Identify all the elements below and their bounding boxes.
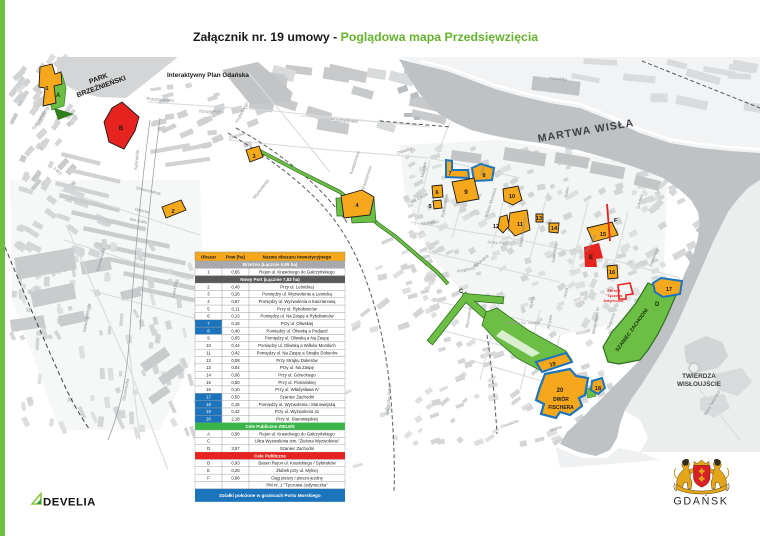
svg-text:Przy ul. Letnickiej: Przy ul. Letnickiej [280,284,313,289]
svg-text:12: 12 [206,358,211,363]
svg-text:"Tęczowa: "Tęczowa [606,294,624,298]
svg-text:F: F [207,475,210,480]
svg-text:Przy ul. Floriańskiej: Przy ul. Floriańskiej [278,380,315,385]
svg-text:0,08: 0,08 [231,475,240,480]
svg-text:Pomiędzy ul. Wyzwolenia a Kasz: Pomiędzy ul. Wyzwolenia a Kasztanową [259,299,336,304]
svg-text:0,08: 0,08 [231,358,240,363]
svg-text:Pomiędzy ul. Wyzwolenia i Star: Pomiędzy ul. Wyzwolenia i Starowiejską [259,402,336,407]
svg-text:6: 6 [435,190,438,196]
svg-text:17: 17 [206,395,211,400]
svg-text:0,50: 0,50 [231,395,240,400]
svg-text:0,15: 0,15 [231,402,240,407]
svg-text:5: 5 [428,204,431,210]
svg-text:Przy ul. Wyzwolenia 41: Przy ul. Wyzwolenia 41 [275,409,320,414]
svg-text:GDAŃSK: GDAŃSK [673,495,728,508]
svg-text:0,04: 0,04 [231,365,240,370]
svg-text:14: 14 [206,372,211,377]
svg-text:0,40: 0,40 [231,284,240,289]
svg-text:E: E [207,468,210,473]
svg-text:Działki położone w granicach P: Działki położone w granicach Portu Morsk… [219,493,321,498]
svg-text:Szaniec Zachodni: Szaniec Zachodni [280,395,314,400]
svg-text:10: 10 [509,194,515,200]
svg-text:2,18: 2,18 [231,417,240,422]
svg-text:DEVELIA: DEVELIA [43,497,96,509]
svg-text:0,50: 0,50 [231,380,240,385]
svg-text:Załącznik nr. 19 umowy - Poglą: Załącznik nr. 19 umowy - Poglądowa mapa … [193,30,538,44]
svg-text:16: 16 [206,387,211,392]
svg-text:0,65: 0,65 [231,270,240,275]
svg-text:DWÓR: DWÓR [553,395,569,403]
svg-text:Nowy Port: Nowy Port [199,109,222,116]
svg-text:13: 13 [536,216,542,222]
svg-text:0,26: 0,26 [231,292,240,297]
svg-text:Pomiędzy ul. Oliwską a Wilków: Pomiędzy ul. Oliwską a Wilków Morskich [258,343,336,348]
svg-text:0,25: 0,25 [231,468,240,473]
svg-text:Pomiędzy ul. Na Zaspę a Ryboło: Pomiędzy ul. Na Zaspę a Rybołowców [260,314,334,319]
svg-text:Przy Strajku Dokerów: Przy Strajku Dokerów [276,358,318,363]
svg-text:Ciąg pieszy i pieszo-jezdny: Ciąg pieszy i pieszo-jezdny [271,475,324,480]
svg-text:Szaniec Zachodni: Szaniec Zachodni [280,446,314,451]
svg-text:0,42: 0,42 [231,350,240,355]
svg-text:Obszar: Obszar [201,254,217,259]
svg-text:0,06: 0,06 [231,372,240,377]
svg-text:WISŁOUJŚCIE: WISŁOUJŚCIE [677,379,722,388]
svg-text:15: 15 [600,232,606,238]
svg-text:Pomiędzy ul. Wyzwolenia a Letn: Pomiędzy ul. Wyzwolenia a Letnicką [262,292,332,297]
svg-text:E: E [589,255,593,261]
svg-text:A: A [56,93,61,99]
svg-text:Przy ul. Na Zaspę: Przy ul. Na Zaspę [280,365,315,370]
svg-text:Pow (ha): Pow (ha) [226,254,246,259]
svg-text:12: 12 [493,224,499,230]
svg-text:Żłobek przy ul. Mylnej: Żłobek przy ul. Mylnej [276,468,318,473]
svg-text:15: 15 [206,380,211,385]
svg-text:3,57: 3,57 [231,446,240,451]
svg-text:D: D [655,302,660,308]
svg-text:Przy ul. Oliwskiej: Przy ul. Oliwskiej [281,321,314,326]
svg-text:Cele Publiczne: Cele Publiczne [254,453,286,458]
svg-text:Nowy Port (Łącznie 7,82 ha): Nowy Port (Łącznie 7,82 ha) [240,277,300,282]
svg-text:Pomiędzy ul. Oliwską a Na Zasp: Pomiędzy ul. Oliwską a Na Zaspę [265,336,330,341]
svg-text:Rejon ul. Krasickiego do Gałcz: Rejon ul. Krasickiego do Gałczyńskiego [259,431,335,436]
svg-text:0,40: 0,40 [231,328,240,333]
svg-text:TWIERDZA: TWIERDZA [682,373,716,380]
svg-text:7: 7 [448,171,451,177]
svg-text:11: 11 [206,350,211,355]
svg-text:C: C [459,289,464,295]
svg-text:C: C [207,439,210,444]
svg-text:0,10: 0,10 [231,387,240,392]
svg-text:Cmentarz Św. Jadwigi: Cmentarz Św. Jadwigi [504,320,540,325]
svg-text:9: 9 [464,189,468,196]
svg-text:Interaktywny Plan Gdańska: Interaktywny Plan Gdańska [167,72,249,79]
svg-text:2: 2 [171,209,174,215]
svg-text:Pomiędzy ul. Na Zaspę a Strajk: Pomiędzy ul. Na Zaspę a Strajku Dokerów [257,350,339,355]
svg-text:10: 10 [206,343,211,348]
svg-text:19: 19 [206,409,211,414]
svg-text:0,58: 0,58 [231,431,240,436]
svg-text:F: F [614,218,618,224]
svg-text:Przy ul. Starowiejskiej: Przy ul. Starowiejskiej [276,417,318,422]
svg-text:3: 3 [252,154,255,160]
svg-text:0,42: 0,42 [231,409,240,414]
svg-text:0,44: 0,44 [231,343,240,348]
svg-text:0,67: 0,67 [231,299,240,304]
svg-text:Jedyneczka": Jedyneczka" [603,299,625,303]
svg-text:Pomiędzy ul. Oliwską a Podjazd: Pomiędzy ul. Oliwską a Podjazd [266,328,328,333]
svg-text:0,13: 0,13 [231,314,240,319]
svg-text:18: 18 [595,386,601,392]
svg-text:B: B [207,461,210,466]
svg-text:20: 20 [557,388,564,394]
svg-text:Ulica Wyzwolenia tzw. "Zielona: Ulica Wyzwolenia tzw. "Zielona Wyzwoleni… [255,439,340,444]
svg-text:0,93: 0,93 [231,461,240,466]
svg-text:Cele Publiczne ZIELEŃ: Cele Publiczne ZIELEŃ [245,422,294,429]
svg-text:A: A [207,431,210,436]
svg-text:18: 18 [206,402,211,407]
svg-text:D: D [207,446,210,451]
svg-text:Nazwa obszaru inwestycyjnego: Nazwa obszaru inwestycyjnego [263,254,332,259]
svg-text:14: 14 [551,226,558,232]
svg-text:B: B [119,126,124,132]
svg-text:Przy ul. Władysława IV: Przy ul. Władysława IV [275,387,319,392]
svg-text:0,16: 0,16 [231,321,240,326]
svg-text:Rejon ul. Krasickiego do Gałcz: Rejon ul. Krasickiego do Gałczyńskiego [259,270,335,275]
svg-text:16: 16 [609,270,615,276]
svg-text:0,65: 0,65 [231,336,240,341]
svg-text:20: 20 [206,417,211,422]
svg-text:PM nr. 1 "Tęczowa Jedyneczka": PM nr. 1 "Tęczowa Jedyneczka" [266,483,328,488]
svg-text:1: 1 [45,86,48,92]
svg-text:Przy ul. Rybołowców: Przy ul. Rybołowców [277,306,318,311]
svg-text:Basen Rejon ul. Krasickiego /: Basen Rejon ul. Krasickiego / Sybiraków [258,461,336,466]
svg-text:17: 17 [666,287,672,293]
svg-text:0,11: 0,11 [231,306,240,311]
svg-text:FISCHERA: FISCHERA [548,405,574,411]
svg-text:Przy ul. Góreckiego: Przy ul. Góreckiego [278,372,316,377]
svg-text:Brzeźno (Łącznie 0,65 ha): Brzeźno (Łącznie 0,65 ha) [243,262,298,267]
svg-text:13: 13 [206,365,211,370]
svg-text:PM nr 1: PM nr 1 [608,289,621,293]
